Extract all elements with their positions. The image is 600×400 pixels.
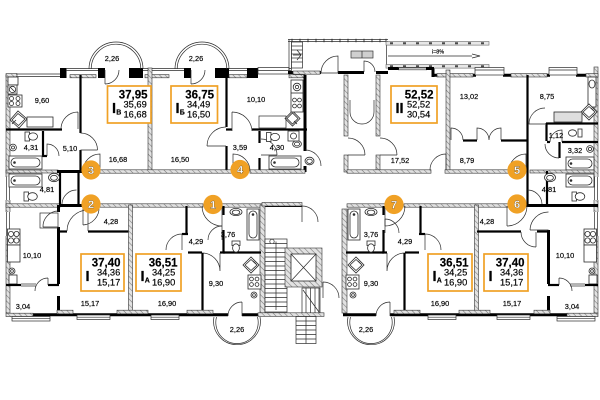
svg-text:4,28: 4,28: [104, 217, 118, 226]
svg-text:34,25: 34,25: [152, 268, 175, 278]
svg-text:10,10: 10,10: [23, 251, 42, 260]
svg-text:8,79: 8,79: [460, 156, 474, 165]
svg-text:9,60: 9,60: [35, 96, 49, 105]
svg-text:4,31: 4,31: [24, 143, 38, 152]
svg-text:16,90: 16,90: [152, 278, 175, 288]
svg-text:15,17: 15,17: [500, 278, 523, 288]
svg-text:1,12: 1,12: [549, 131, 563, 140]
svg-text:17,52: 17,52: [391, 156, 410, 165]
svg-text:4,29: 4,29: [398, 237, 412, 246]
svg-text:4: 4: [237, 165, 244, 177]
svg-text:16,90: 16,90: [444, 278, 467, 288]
svg-text:2,26: 2,26: [189, 54, 203, 63]
svg-text:15,17: 15,17: [81, 299, 100, 308]
svg-text:52,52: 52,52: [407, 100, 430, 110]
svg-text:16,90: 16,90: [431, 299, 450, 308]
svg-text:16,50: 16,50: [187, 110, 210, 120]
svg-text:4,30: 4,30: [270, 143, 284, 152]
svg-text:4,81: 4,81: [542, 185, 556, 194]
svg-text:35,69: 35,69: [124, 100, 147, 110]
svg-text:4,81: 4,81: [40, 185, 54, 194]
svg-text:16,68: 16,68: [124, 110, 147, 120]
svg-text:II: II: [396, 101, 404, 117]
svg-text:34,25: 34,25: [444, 268, 467, 278]
svg-text:2,26: 2,26: [105, 54, 119, 63]
svg-text:9,30: 9,30: [209, 279, 223, 288]
svg-text:30,54: 30,54: [407, 110, 430, 120]
svg-text:5,10: 5,10: [63, 144, 77, 153]
svg-text:34,36: 34,36: [500, 268, 523, 278]
svg-text:9,30: 9,30: [364, 279, 378, 288]
svg-text:10,10: 10,10: [556, 251, 575, 260]
svg-text:6: 6: [514, 199, 520, 211]
svg-text:16,90: 16,90: [158, 299, 177, 308]
svg-text:В: В: [116, 109, 121, 116]
svg-text:3,76: 3,76: [364, 230, 378, 239]
svg-text:5: 5: [514, 165, 520, 177]
svg-text:I: I: [86, 269, 90, 285]
svg-text:Б: Б: [180, 109, 185, 116]
svg-text:34,49: 34,49: [187, 100, 210, 110]
svg-text:13,02: 13,02: [460, 92, 479, 101]
svg-text:2: 2: [88, 199, 94, 211]
svg-text:1: 1: [210, 200, 216, 212]
svg-text:2,26: 2,26: [230, 325, 244, 334]
svg-text:i=8%: i=8%: [432, 50, 444, 56]
svg-text:3,04: 3,04: [16, 302, 30, 311]
svg-text:15,17: 15,17: [503, 299, 522, 308]
svg-text:15,17: 15,17: [97, 278, 120, 288]
svg-text:34,36: 34,36: [97, 268, 120, 278]
svg-text:I: I: [489, 269, 493, 285]
svg-text:4,29: 4,29: [189, 237, 203, 246]
svg-text:3,59: 3,59: [233, 143, 247, 152]
svg-text:8,75: 8,75: [540, 92, 554, 101]
svg-text:А: А: [437, 277, 442, 284]
svg-text:3,04: 3,04: [565, 302, 579, 311]
svg-text:10,10: 10,10: [247, 95, 266, 104]
svg-text:4,28: 4,28: [480, 217, 494, 226]
svg-text:16,68: 16,68: [109, 155, 128, 164]
svg-text:7: 7: [391, 200, 397, 212]
svg-text:2,26: 2,26: [359, 325, 373, 334]
svg-text:А: А: [145, 277, 150, 284]
svg-text:3: 3: [88, 165, 94, 177]
svg-text:16,50: 16,50: [171, 155, 190, 164]
svg-text:3,76: 3,76: [221, 230, 235, 239]
svg-text:3,32: 3,32: [568, 146, 582, 155]
